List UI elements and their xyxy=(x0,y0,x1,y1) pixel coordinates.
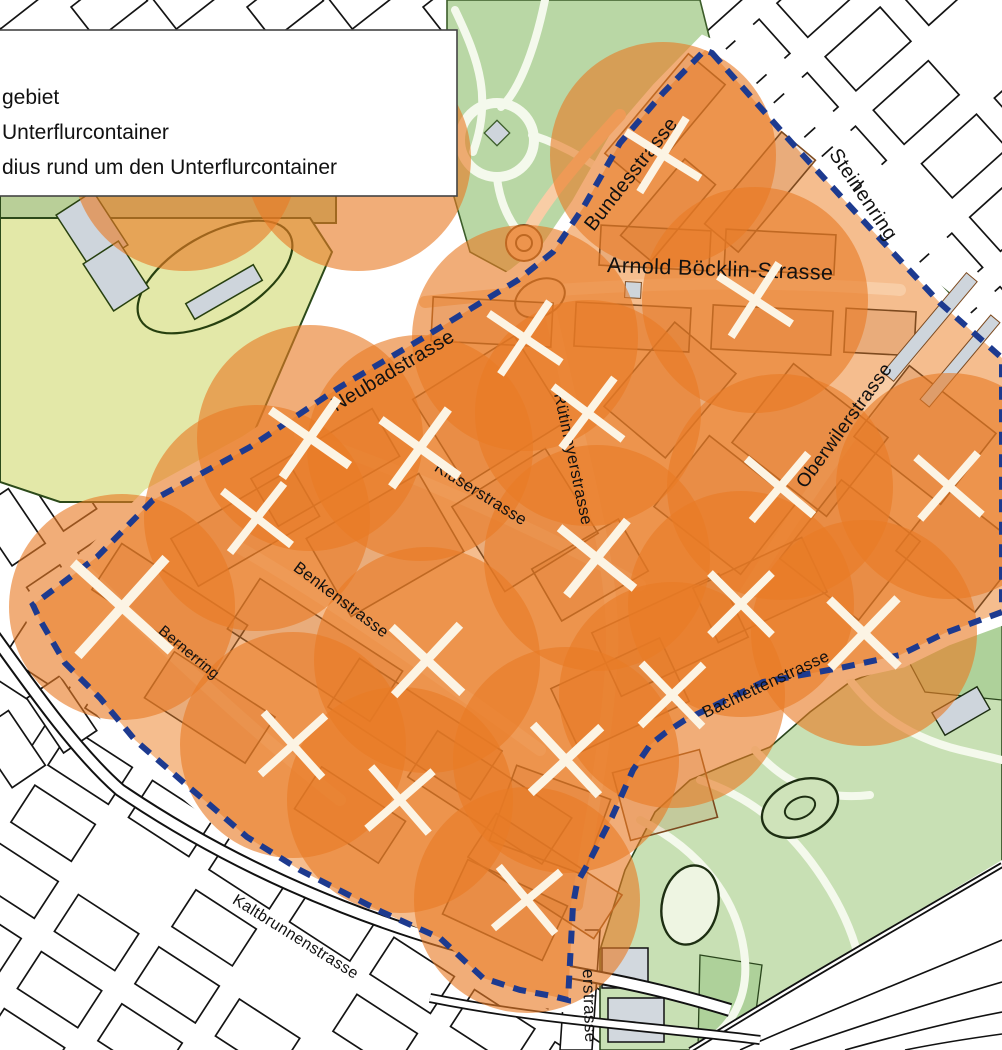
city-map: Bundesstrasse Steinenring Arnold Böcklin… xyxy=(0,0,1002,1050)
outside-building xyxy=(970,168,1002,252)
outside-building xyxy=(994,49,1002,133)
outside-building xyxy=(326,0,402,29)
outside-building xyxy=(0,842,58,918)
legend-line-container: Unterflurcontainer xyxy=(2,121,169,144)
outside-building xyxy=(777,0,863,37)
outside-building xyxy=(333,994,417,1050)
outside-building xyxy=(922,114,1002,198)
outside-building xyxy=(0,0,51,29)
outside-building xyxy=(873,61,959,145)
outside-building xyxy=(898,0,984,25)
outside-building xyxy=(150,0,226,29)
outside-building xyxy=(215,999,299,1050)
legend-line-radius: dius rund um den Unterflurcontainer xyxy=(2,156,337,179)
street-label-erstrasse: erstrasse xyxy=(579,969,601,1043)
legend: gebiet Unterflurcontainer dius rund um d… xyxy=(0,30,457,196)
outside-building xyxy=(17,952,101,1028)
outside-building xyxy=(825,7,911,91)
outside-building xyxy=(54,895,138,971)
outside-building xyxy=(11,785,95,861)
outside-building xyxy=(135,947,219,1023)
outside-building xyxy=(0,1009,65,1050)
outside-building xyxy=(0,899,21,975)
legend-line-pilot-area: gebiet xyxy=(2,86,59,109)
outside-building xyxy=(98,1004,182,1050)
